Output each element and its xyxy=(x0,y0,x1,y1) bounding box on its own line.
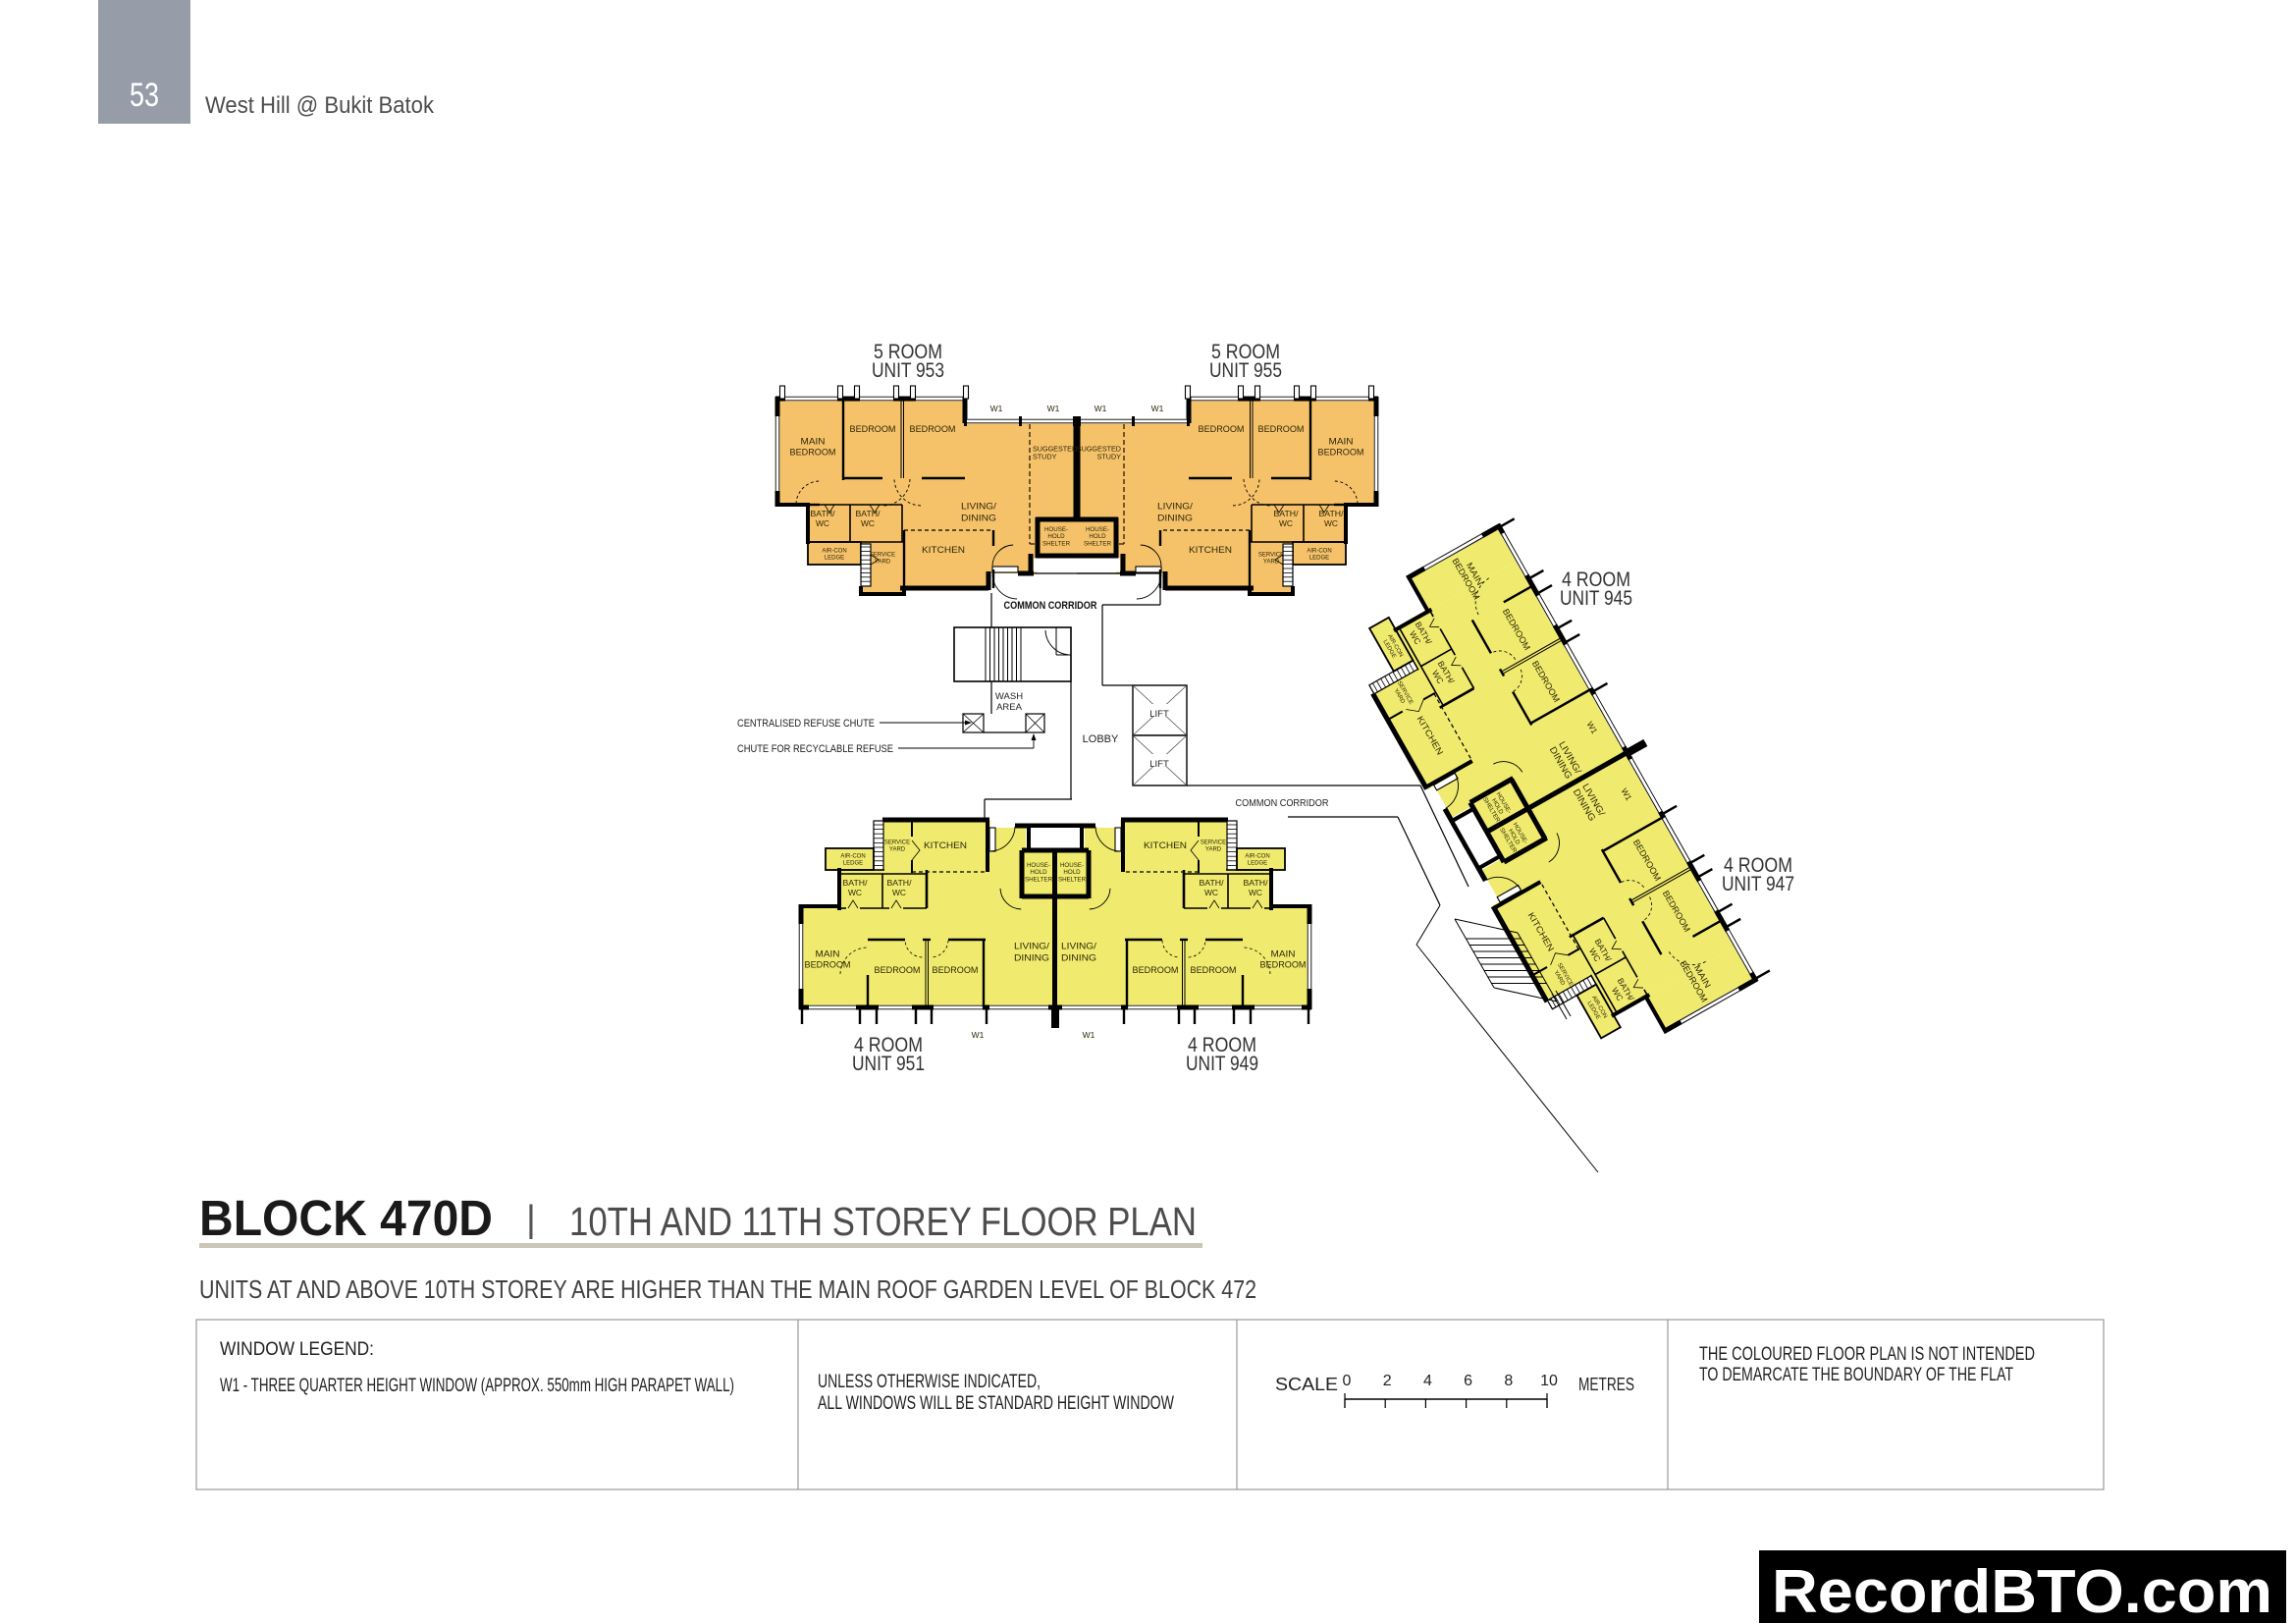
svg-text:WINDOW LEGEND:: WINDOW LEGEND: xyxy=(220,1339,374,1360)
svg-text:10: 10 xyxy=(1540,1373,1558,1389)
svg-text:UNLESS OTHERWISE INDICATED,: UNLESS OTHERWISE INDICATED, xyxy=(818,1372,1041,1392)
svg-text:KITCHEN: KITCHEN xyxy=(922,545,965,555)
svg-text:W1: W1 xyxy=(990,404,1003,413)
svg-text:LOBBY: LOBBY xyxy=(1083,733,1119,745)
svg-text:KITCHEN: KITCHEN xyxy=(1189,545,1232,555)
svg-text:8: 8 xyxy=(1504,1373,1513,1389)
svg-text:AIR-CONLEDGE: AIR-CONLEDGE xyxy=(1307,549,1331,562)
svg-text:AIR-CONLEDGE: AIR-CONLEDGE xyxy=(822,549,846,562)
svg-text:THE COLOURED FLOOR PLAN IS NOT: THE COLOURED FLOOR PLAN IS NOT INTENDED xyxy=(1699,1344,2035,1365)
svg-text:LIVING/DINING: LIVING/DINING xyxy=(1157,501,1193,523)
svg-text:W1 - THREE QUARTER HEIGHT WIND: W1 - THREE QUARTER HEIGHT WINDOW (APPROX… xyxy=(220,1376,734,1396)
svg-text:AIR-CONLEDGE: AIR-CONLEDGE xyxy=(1245,854,1269,867)
svg-text:CHUTE FOR RECYCLABLE REFUSE: CHUTE FOR RECYCLABLE REFUSE xyxy=(737,743,893,755)
svg-text:BEDROOM: BEDROOM xyxy=(933,965,979,975)
svg-text:W1: W1 xyxy=(1047,404,1060,413)
svg-text:10TH AND 11TH STOREY FLOOR PLA: 10TH AND 11TH STOREY FLOOR PLAN xyxy=(569,1199,1197,1244)
svg-text:COMMON CORRIDOR: COMMON CORRIDOR xyxy=(1236,797,1329,809)
svg-text:RecordBTO.com: RecordBTO.com xyxy=(1772,1558,2272,1624)
svg-text:West Hill @ Bukit Batok: West Hill @ Bukit Batok xyxy=(205,92,435,119)
svg-text:TO DEMARCATE THE BOUNDARY OF T: TO DEMARCATE THE BOUNDARY OF THE FLAT xyxy=(1699,1365,2013,1385)
svg-text:0: 0 xyxy=(1343,1373,1352,1389)
svg-text:2: 2 xyxy=(1383,1373,1392,1389)
svg-text:COMMON CORRIDOR: COMMON CORRIDOR xyxy=(1004,600,1097,612)
svg-text:4 ROOMUNIT 947: 4 ROOMUNIT 947 xyxy=(1722,854,1794,895)
svg-text:BEDROOM: BEDROOM xyxy=(1133,965,1179,975)
svg-text:5 ROOMUNIT 953: 5 ROOMUNIT 953 xyxy=(872,341,944,382)
svg-text:METRES: METRES xyxy=(1578,1375,1634,1394)
svg-text:W1: W1 xyxy=(1095,404,1107,413)
svg-text:BEDROOM: BEDROOM xyxy=(910,424,956,434)
svg-text:BEDROOM: BEDROOM xyxy=(1199,424,1245,434)
svg-text:BEDROOM: BEDROOM xyxy=(850,424,896,434)
svg-text:W1: W1 xyxy=(972,1030,985,1040)
svg-text:KITCHEN: KITCHEN xyxy=(1144,840,1187,850)
svg-text:LIVING/DINING: LIVING/DINING xyxy=(961,501,996,523)
svg-text:4 ROOMUNIT 945: 4 ROOMUNIT 945 xyxy=(1560,568,1632,610)
svg-text:LIFT: LIFT xyxy=(1149,709,1169,720)
svg-text:UNITS AT AND ABOVE 10TH STOREY: UNITS AT AND ABOVE 10TH STOREY ARE HIGHE… xyxy=(199,1274,1256,1304)
svg-text:BEDROOM: BEDROOM xyxy=(1191,965,1237,975)
svg-text:BLOCK 470D: BLOCK 470D xyxy=(199,1190,493,1246)
svg-text:WASHAREA: WASHAREA xyxy=(995,691,1023,713)
svg-text:AIR-CONLEDGE: AIR-CONLEDGE xyxy=(840,854,865,867)
svg-text:4: 4 xyxy=(1423,1373,1432,1389)
svg-text:LIVING/DINING: LIVING/DINING xyxy=(1014,941,1049,963)
svg-text:CENTRALISED REFUSE CHUTE: CENTRALISED REFUSE CHUTE xyxy=(737,718,875,730)
svg-text:5 ROOMUNIT 955: 5 ROOMUNIT 955 xyxy=(1209,341,1282,382)
svg-text:KITCHEN: KITCHEN xyxy=(924,840,967,850)
svg-text:BEDROOM: BEDROOM xyxy=(875,965,921,975)
svg-text:6: 6 xyxy=(1464,1373,1472,1389)
svg-text:SCALE: SCALE xyxy=(1275,1375,1338,1394)
svg-text:BEDROOM: BEDROOM xyxy=(1258,424,1305,434)
svg-text:53: 53 xyxy=(130,77,159,114)
svg-text:W1: W1 xyxy=(1151,404,1164,413)
svg-text:4 ROOMUNIT 949: 4 ROOMUNIT 949 xyxy=(1186,1034,1258,1075)
svg-text:4 ROOMUNIT 951: 4 ROOMUNIT 951 xyxy=(852,1034,925,1075)
svg-text:ALL WINDOWS WILL BE STANDARD H: ALL WINDOWS WILL BE STANDARD HEIGHT WIND… xyxy=(818,1393,1174,1414)
svg-text:LIVING/DINING: LIVING/DINING xyxy=(1061,941,1096,963)
svg-text:|: | xyxy=(526,1199,536,1240)
svg-text:LIFT: LIFT xyxy=(1149,759,1169,770)
svg-text:W1: W1 xyxy=(1083,1030,1095,1040)
